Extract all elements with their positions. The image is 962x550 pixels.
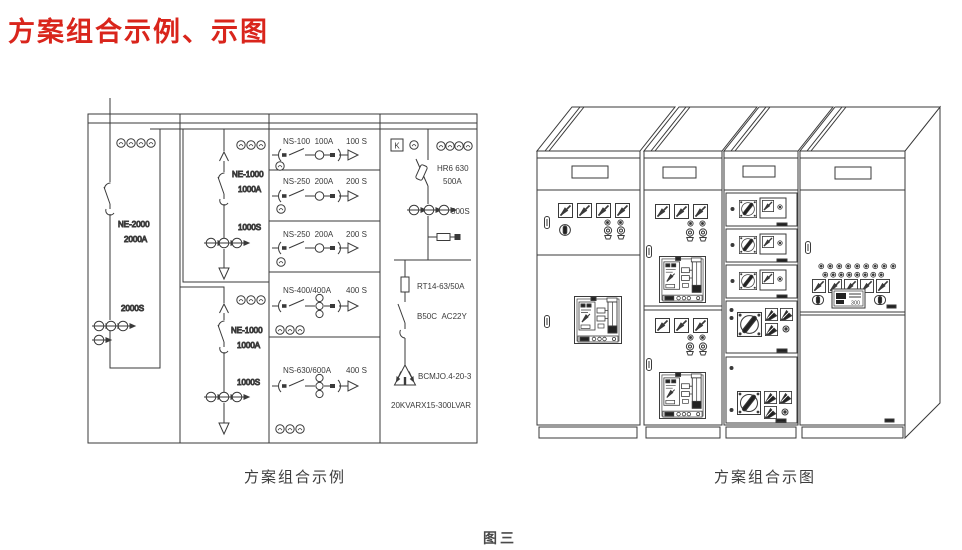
panel-meter-icon xyxy=(286,326,294,334)
ct-icon xyxy=(230,392,249,402)
fuse-icon xyxy=(401,277,409,292)
meter-icon xyxy=(764,406,776,418)
panel-meter-icon xyxy=(464,142,472,150)
feeder-4-ct: 400 S xyxy=(346,286,367,295)
hinge-icon xyxy=(545,316,550,328)
incomer-main-model: NE-2000 xyxy=(118,220,150,229)
ct-icon xyxy=(92,335,111,345)
signal-lamp-icon xyxy=(686,343,693,355)
drawer-handle xyxy=(777,223,787,226)
meter-icon xyxy=(694,205,708,219)
signal-lamp-icon xyxy=(604,227,611,239)
rotary-switch-icon xyxy=(738,313,762,337)
indicator-lamp-icon xyxy=(605,220,610,225)
meter-icon xyxy=(616,204,630,218)
panel-meter-icon xyxy=(446,142,454,150)
rotary-switch-icon xyxy=(739,236,756,253)
switch-rating-label: 500A xyxy=(443,177,462,186)
incomer-main-ct: 2000S xyxy=(121,304,144,313)
hinge-icon xyxy=(647,246,652,258)
panel-meter-icon xyxy=(410,141,418,149)
feeder-1-ct: 100 S xyxy=(346,137,367,146)
feeder-row-3: NS-250 200A 200 S xyxy=(272,230,367,266)
hinge-icon xyxy=(647,359,652,371)
indicator-lamp-icon xyxy=(783,326,789,332)
signal-lamp-icon xyxy=(699,343,706,355)
door-handle xyxy=(885,419,894,422)
meter-icon xyxy=(876,279,889,292)
incomer-main-rating: 2000A xyxy=(124,235,148,244)
meter-icon xyxy=(656,205,670,219)
signal-lamp-icon xyxy=(699,229,706,241)
switch-model-label: HR6 630 xyxy=(437,164,469,173)
feeder-rows: NS-100 100A 100 S NS-250 200A 200 S NS-2… xyxy=(272,137,367,433)
page-title: 方案组合示例、示图 xyxy=(8,10,269,49)
meter-icon xyxy=(597,204,611,218)
cabinet-side-panel xyxy=(905,107,940,438)
signal-lamp-icon xyxy=(686,229,693,241)
schematic-caption: 方案组合示例 xyxy=(200,466,390,487)
panel-meter-icon xyxy=(237,141,245,149)
capacitor-model-label: BCMJO.4-20-3 xyxy=(418,372,472,381)
panel-meter-icon xyxy=(277,205,285,213)
meter-icon xyxy=(762,236,773,247)
drawer-handle xyxy=(777,259,787,262)
indicator-lamp-icon xyxy=(688,335,693,340)
meter-icon xyxy=(694,319,708,333)
meter-icon xyxy=(762,200,773,211)
incomer-lower-ct: 1000S xyxy=(237,378,260,387)
feeder-row-1: NS-100 100A 100 S xyxy=(272,137,367,170)
incomer-lower-circuit: NE-1000 1000A 1000S xyxy=(180,287,265,434)
panel-meter-icon xyxy=(257,296,265,304)
fuse-label: RT14-63/50A xyxy=(417,282,465,291)
signal-lamp-icon xyxy=(617,227,624,239)
meter-icon xyxy=(765,323,777,335)
indicator-lamp-icon xyxy=(688,221,693,226)
incomer-upper-circuit: NE-1000 1000A 1000S xyxy=(183,129,269,282)
drawer-handle xyxy=(777,295,787,298)
panel-meter-icon xyxy=(237,296,245,304)
control-knob-icon xyxy=(875,296,886,305)
door-handle xyxy=(887,305,896,308)
hinge-icon xyxy=(545,217,550,229)
feeder-3-model: NS-250 200A xyxy=(283,230,334,239)
lamp-row-1 xyxy=(819,264,896,269)
feeder-2-ct: 200 S xyxy=(346,177,367,186)
discharge-resistor-icon xyxy=(437,234,450,241)
cabinet-1-front xyxy=(537,151,640,425)
meter-icon xyxy=(656,319,670,333)
ct-label: 500S xyxy=(451,207,470,216)
meter-icon xyxy=(762,272,773,283)
cabinets-caption: 方案组合示图 xyxy=(670,466,860,487)
catalog-page: 方案组合示例、示图 xyxy=(0,0,962,550)
meter-icon xyxy=(764,391,776,403)
indicator-lamp-icon xyxy=(778,205,783,210)
indicator-lamp-icon xyxy=(700,335,705,340)
contactor-icon xyxy=(400,330,405,338)
feeder-5-ct: 400 S xyxy=(346,366,367,375)
meter-icon xyxy=(779,391,791,403)
meter-icon xyxy=(675,205,689,219)
breaker-faceplate-icon xyxy=(659,256,705,302)
plinth-2 xyxy=(646,427,720,438)
breaker-faceplate-icon xyxy=(659,372,705,418)
panel-meter-icon xyxy=(127,139,135,147)
capacitor-branch: K xyxy=(391,129,472,410)
multifunction-meter: 300 xyxy=(832,289,865,308)
panel-meter-icon xyxy=(276,326,284,334)
panel-meter-icon xyxy=(277,258,285,266)
indicator-lamp-icon xyxy=(778,277,783,282)
meter-icon xyxy=(765,308,777,320)
indicator-lamp-icon xyxy=(700,221,705,226)
meter-icon xyxy=(578,204,592,218)
panel-meter-icon xyxy=(437,142,445,150)
meter-icon xyxy=(675,319,689,333)
meter-icon xyxy=(812,279,825,292)
feeder-row-5: NS-630/600A 400 S xyxy=(272,366,367,433)
feeder-5-model: NS-630/600A xyxy=(283,366,332,375)
cabinet-3-front xyxy=(724,151,798,425)
panel-meter-icon xyxy=(455,142,463,150)
rotary-switch-icon xyxy=(738,392,761,415)
fuse-switch-icon xyxy=(415,164,427,181)
control-knob-icon xyxy=(813,296,824,305)
drawer-handle xyxy=(777,349,787,352)
plinth-4 xyxy=(802,427,903,438)
panel-meter-icon xyxy=(276,425,284,433)
feeder-2-model: NS-250 200A xyxy=(283,177,334,186)
control-knob-icon xyxy=(560,225,571,236)
hinge-icon xyxy=(806,242,811,254)
feeder-row-4: NS-400/400A 400 S xyxy=(272,286,367,334)
figure-number: 图三 xyxy=(420,528,580,548)
k-label: K xyxy=(394,142,400,151)
incomer-upper-ct: 1000S xyxy=(238,223,261,232)
panel-meter-icon xyxy=(117,139,125,147)
drawer-handle xyxy=(776,419,786,422)
rotary-switch-icon xyxy=(739,272,756,289)
rotary-switch-icon xyxy=(739,200,756,217)
indicator-lamp-icon xyxy=(618,220,623,225)
meter-display-value: 300 xyxy=(851,301,860,307)
single-line-diagram: NE-2000 2000A 2000S NE-1000 1000A 1000S xyxy=(85,95,525,455)
plinth-1 xyxy=(539,427,637,438)
panel-meter-icon xyxy=(296,326,304,334)
terminal-icon xyxy=(455,235,460,240)
ct-icon xyxy=(230,238,249,248)
bank-rating-label: 20KVARX15-300LVAR xyxy=(391,401,471,410)
ct-icon xyxy=(116,321,135,331)
feeder-row-2: NS-250 200A 200 S xyxy=(272,177,367,213)
feeder-1-model: NS-100 100A xyxy=(283,137,334,146)
meter-icon xyxy=(559,204,573,218)
breaker-faceplate-icon xyxy=(575,297,622,344)
feeder-4-model: NS-400/400A xyxy=(283,286,332,295)
incomer-lower-rating: 1000A xyxy=(237,341,261,350)
contactor-label: B50C AC22Y xyxy=(417,312,467,321)
panel-meter-icon xyxy=(147,139,155,147)
panel-meter-icon xyxy=(247,296,255,304)
panel-meter-icon xyxy=(296,425,304,433)
incomer-main-circuit: NE-2000 2000A 2000S xyxy=(92,98,160,368)
capacitor-bank-icon xyxy=(395,365,416,385)
cabinet-drawing: 300 xyxy=(525,90,945,460)
panel-meter-icon xyxy=(247,141,255,149)
indicator-lamp-icon xyxy=(778,241,783,246)
panel-meter-icon xyxy=(257,141,265,149)
panel-meter-icon xyxy=(286,425,294,433)
indicator-lamp-icon xyxy=(782,409,788,415)
feeder-3-ct: 200 S xyxy=(346,230,367,239)
incomer-lower-model: NE-1000 xyxy=(231,326,263,335)
meter-icon xyxy=(780,308,792,320)
plinth-3 xyxy=(726,427,796,438)
panel-meter-icon xyxy=(137,139,145,147)
incomer-upper-rating: 1000A xyxy=(238,185,262,194)
panel-meter-icon xyxy=(276,162,284,170)
incomer-upper-model: NE-1000 xyxy=(232,170,264,179)
